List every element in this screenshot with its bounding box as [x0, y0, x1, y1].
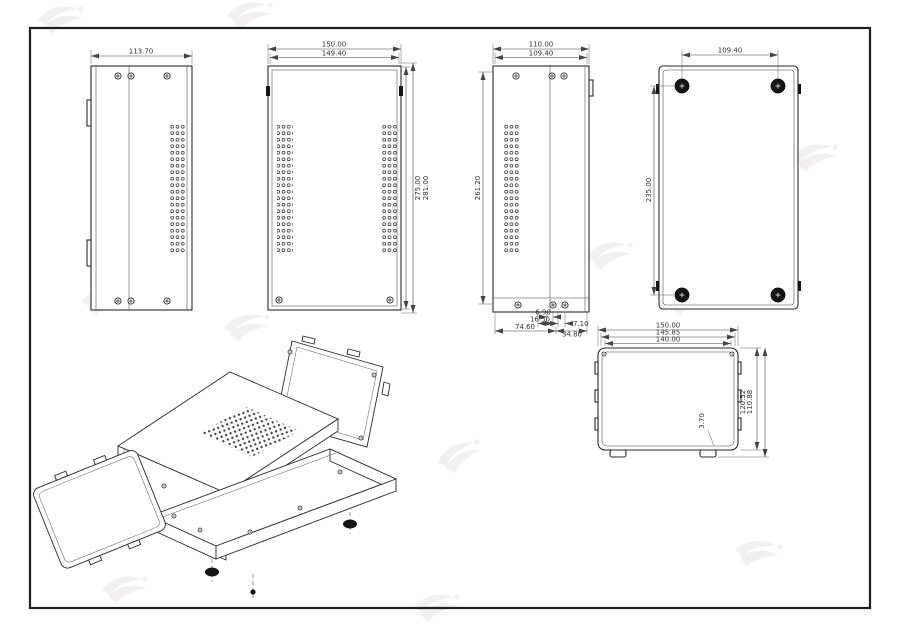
watermark-logo — [227, 2, 273, 30]
perforation-strip — [277, 125, 293, 255]
dim-text: 150.00 — [322, 41, 347, 49]
dim-text: 110.00 — [529, 41, 554, 49]
screw-marker — [172, 514, 176, 518]
dim-front-width-inner: 149.40 — [270, 50, 399, 65]
watermark-logo — [792, 144, 838, 172]
dim-text: 261.20 — [474, 176, 482, 201]
perforation-strip — [170, 125, 186, 255]
edge-bump — [595, 362, 598, 374]
view-front: 150.00 149.40 275.00 281.00 — [266, 41, 430, 314]
dim-text: 140.00 — [656, 336, 681, 344]
dim-text: 149.40 — [322, 50, 347, 58]
screw-marker — [359, 436, 363, 440]
screw-marker — [248, 530, 252, 534]
edge-notch — [266, 86, 270, 96]
foot-marker — [771, 79, 785, 93]
panel-foot — [700, 450, 716, 457]
mount-tab — [302, 336, 315, 344]
screw-marker — [513, 73, 519, 79]
watermark-logo — [38, 6, 84, 34]
dim-text: 7.10 — [573, 320, 589, 328]
dim-front-height-inner: 275.00 — [401, 67, 422, 309]
edge-notch — [656, 281, 659, 291]
dim-text: 113.70 — [129, 48, 154, 56]
screw-marker — [730, 352, 734, 356]
screw-marker — [128, 73, 134, 79]
watermark-logo — [435, 439, 486, 477]
mount-tab — [87, 100, 91, 126]
dim-text: 109.40 — [529, 50, 554, 58]
screw-marker — [562, 302, 568, 308]
screw-marker — [387, 297, 393, 303]
dim-right-bottom-offsets: 6.90 16.50 7.10 74.60 34.80 — [495, 309, 589, 339]
view-cover-panel: 150.00 145.85 140.00 110.88 120.52 3 — [595, 322, 769, 458]
dim-text: 275.00 — [414, 176, 422, 201]
perforation-strip — [381, 125, 397, 255]
watermark-logo — [224, 314, 270, 342]
screw-marker — [561, 73, 567, 79]
screw-marker — [602, 352, 606, 356]
dim-text: 281.00 — [422, 176, 430, 201]
foot-marker — [675, 79, 689, 93]
screw-marker — [162, 484, 166, 488]
screw-marker — [128, 298, 134, 304]
mount-tab — [382, 382, 390, 396]
screw-marker — [115, 298, 121, 304]
perforation-strip — [504, 125, 520, 255]
panel-foot — [610, 450, 626, 457]
dim-right-width-inner: 109.40 — [495, 50, 587, 65]
mount-tab — [589, 80, 593, 96]
mount-tab — [87, 240, 91, 266]
mount-tab — [347, 349, 360, 357]
edge-notch — [798, 281, 801, 291]
screw-marker — [550, 302, 556, 308]
technical-drawing-page: 113.70 150.00 149.40 275.00 — [0, 0, 900, 636]
drawing-canvas: 113.70 150.00 149.40 275.00 — [0, 0, 900, 636]
foot-marker — [343, 520, 357, 529]
edge-bump — [595, 390, 598, 402]
edge-notch — [399, 86, 403, 96]
dim-text: 110.88 — [746, 390, 754, 415]
screw-marker — [115, 73, 121, 79]
screw-marker — [250, 589, 255, 594]
dim-text: 3.70 — [698, 413, 706, 429]
dim-text: 235.00 — [645, 178, 653, 203]
screw-marker — [164, 73, 170, 79]
dim-text: 74.60 — [515, 323, 535, 331]
screw-marker — [288, 350, 292, 354]
foot-marker — [771, 288, 785, 302]
edge-notch — [798, 84, 801, 94]
watermark-logo — [733, 537, 783, 572]
view-rear-feet: 109.40 235.00 — [645, 47, 801, 310]
screw-marker — [549, 73, 555, 79]
edge-notch — [656, 84, 659, 94]
watermark-logo — [587, 242, 633, 270]
dim-text: 34.80 — [562, 331, 582, 339]
watermark-logo — [102, 576, 148, 604]
screw-marker — [164, 298, 170, 304]
screw-marker — [276, 297, 282, 303]
edge-bump — [738, 418, 741, 430]
screw-marker — [515, 302, 521, 308]
view-exploded-isometric — [30, 336, 396, 598]
screw-marker — [372, 373, 376, 377]
foot-marker — [205, 568, 219, 577]
dim-right-height: 261.20 — [474, 72, 493, 304]
view-side-panel-right: 110.00 109.40 261.20 6.90 — [474, 41, 593, 339]
dim-text: 109.40 — [718, 47, 743, 55]
edge-bump — [738, 362, 741, 374]
screw-marker — [198, 528, 202, 532]
edge-bump — [595, 418, 598, 430]
dim-text: 120.52 — [739, 390, 747, 415]
screw-marker — [298, 506, 302, 510]
screw-marker — [338, 470, 342, 474]
dim-side-left-width: 113.70 — [91, 48, 192, 65]
foot-marker — [675, 288, 689, 302]
view-side-panel-left: 113.70 — [87, 48, 192, 311]
